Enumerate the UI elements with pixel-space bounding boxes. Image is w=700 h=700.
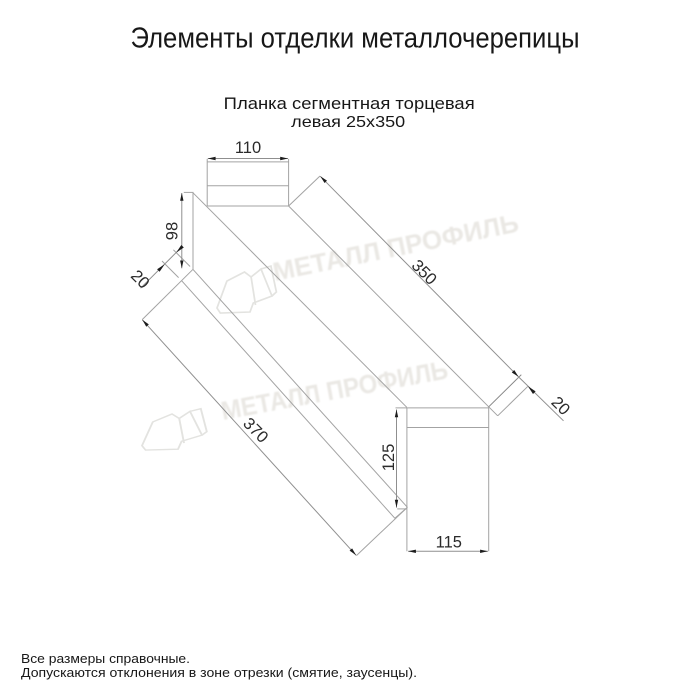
svg-text:125: 125 bbox=[380, 444, 398, 472]
svg-text:115: 115 bbox=[436, 534, 462, 552]
svg-text:Все размеры справочные.: Все размеры справочные. bbox=[21, 651, 190, 666]
svg-text:98: 98 bbox=[164, 222, 182, 240]
svg-text:левая 25х350: левая 25х350 bbox=[291, 114, 405, 131]
svg-text:110: 110 bbox=[235, 139, 261, 157]
svg-text:МЕТАЛЛ ПРОФИЛЬ: МЕТАЛЛ ПРОФИЛЬ bbox=[270, 208, 521, 287]
svg-text:Планка сегментная торцевая: Планка сегментная торцевая bbox=[224, 94, 475, 113]
svg-text:350: 350 bbox=[408, 257, 440, 289]
svg-text:Допускаются отклонения в зоне: Допускаются отклонения в зоне отрезки (с… bbox=[21, 665, 417, 680]
svg-text:20: 20 bbox=[548, 393, 574, 419]
svg-text:Элементы отделки металлочерепи: Элементы отделки металлочерепицы bbox=[131, 23, 580, 55]
svg-text:20: 20 bbox=[127, 267, 153, 293]
